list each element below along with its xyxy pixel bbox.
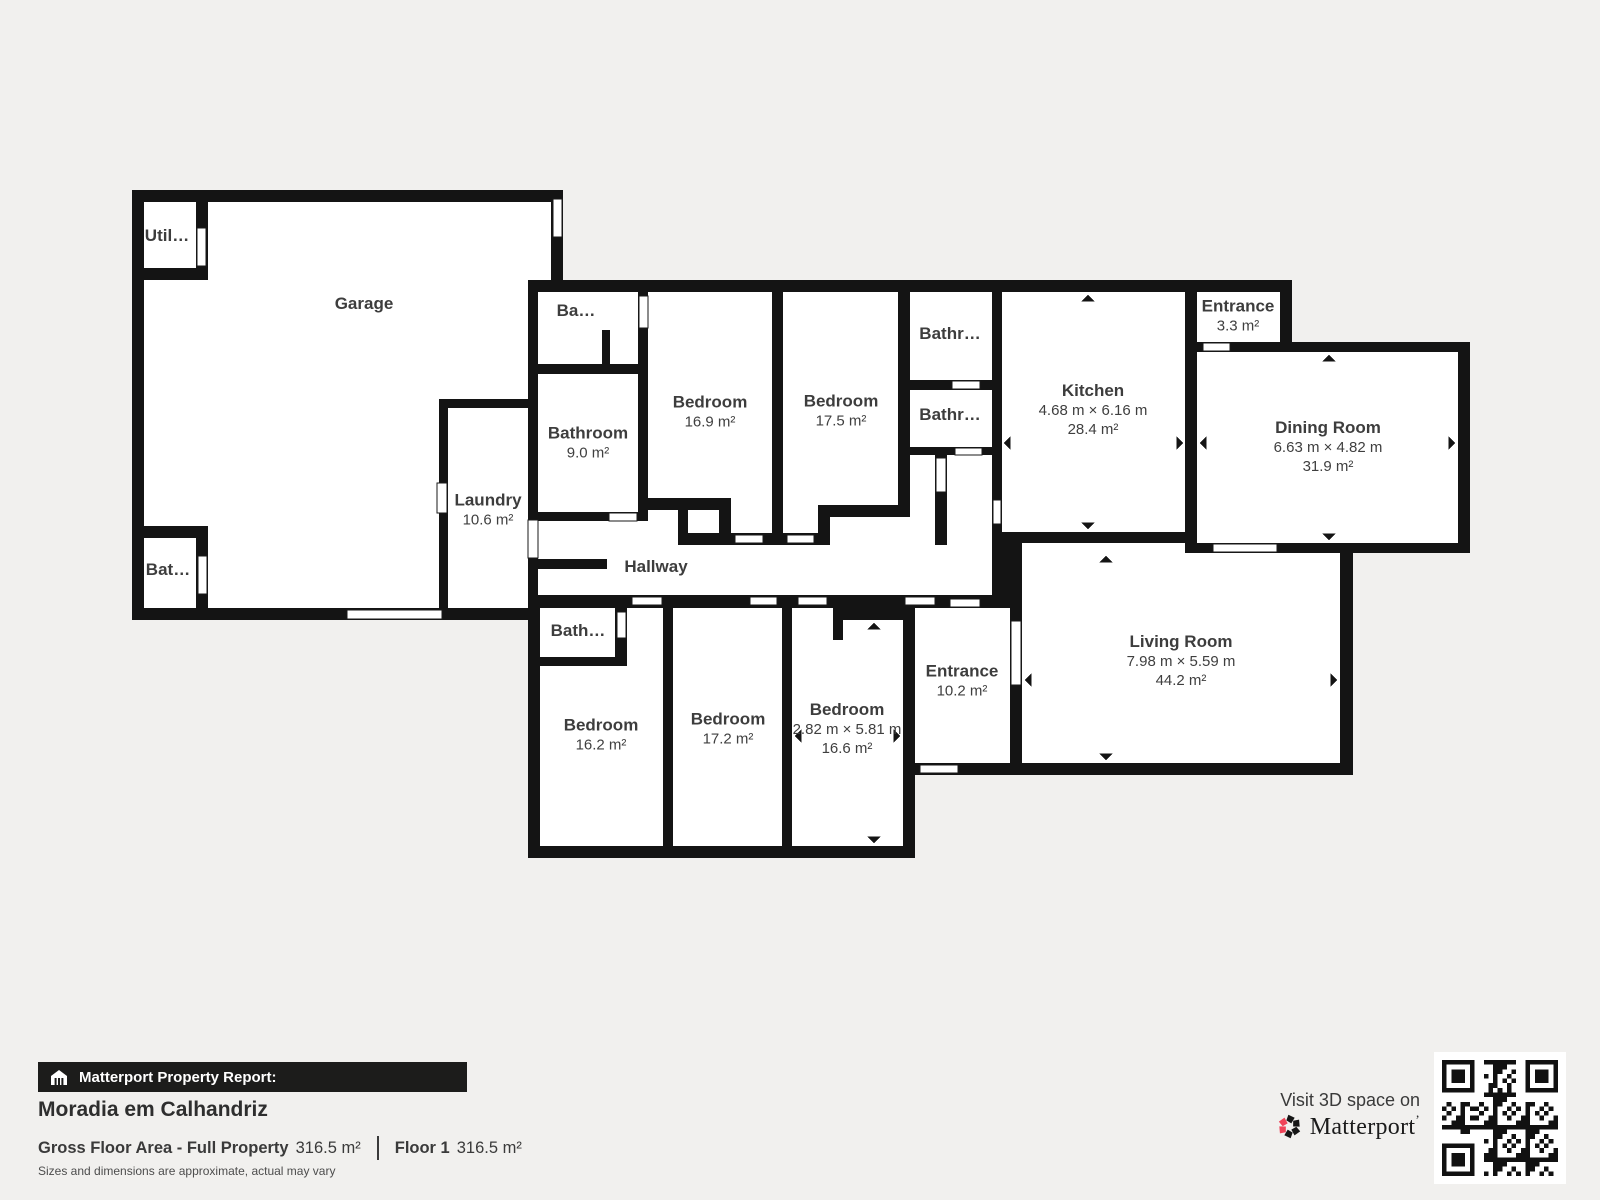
room-label-bedroom-2: Bedroom 17.5 m² bbox=[804, 392, 879, 431]
room-label-bedroom-3: Bedroom 16.2 m² bbox=[564, 716, 639, 755]
room-label-bathroom-mid: Bathr… bbox=[919, 405, 980, 425]
room-label-entrance-main: Entrance 10.2 m² bbox=[926, 662, 999, 701]
room-label-garage-bath: Bat… bbox=[146, 560, 190, 580]
floor-label: Floor 1 bbox=[395, 1139, 450, 1158]
trademark-tick: ’ bbox=[1415, 1112, 1420, 1127]
property-report-icon bbox=[50, 1069, 68, 1086]
area-stats: Gross Floor Area - Full Property 316.5 m… bbox=[38, 1136, 522, 1160]
room-label-bedroom-1: Bedroom 16.9 m² bbox=[673, 393, 748, 432]
gross-floor-area-value: 316.5 m² bbox=[296, 1139, 361, 1158]
room-label-entrance-small: Entrance 3.3 m² bbox=[1202, 297, 1275, 336]
property-report-page: Garage Util… Bat… Laundry 10.6 m² Ba… Ba… bbox=[0, 0, 1600, 1200]
room-label-laundry: Laundry 10.6 m² bbox=[454, 491, 521, 530]
room-label-bath-lower: Bath… bbox=[551, 621, 606, 641]
room-label-balcony: Ba… bbox=[557, 301, 596, 321]
property-title: Moradia em Calhandriz bbox=[38, 1098, 268, 1122]
room-label-dining: Dining Room 6.63 m × 4.82 m 31.9 m² bbox=[1274, 418, 1383, 476]
report-header-bar: Matterport Property Report: bbox=[38, 1062, 467, 1092]
room-label-utility: Util… bbox=[145, 226, 189, 246]
room-label-kitchen: Kitchen 4.68 m × 6.16 m 28.4 m² bbox=[1039, 381, 1148, 439]
gross-floor-area-label: Gross Floor Area - Full Property bbox=[38, 1139, 289, 1158]
report-bar-label: Matterport Property Report: bbox=[79, 1069, 277, 1086]
room-label-living: Living Room 7.98 m × 5.59 m 44.2 m² bbox=[1127, 632, 1236, 690]
qr-code bbox=[1434, 1052, 1566, 1184]
matterport-pinwheel-icon bbox=[1276, 1113, 1303, 1140]
matterport-logo: Matterport’ bbox=[1234, 1112, 1420, 1141]
floor-plan bbox=[0, 0, 1600, 1200]
disclaimer-text: Sizes and dimensions are approximate, ac… bbox=[38, 1164, 335, 1178]
stats-divider bbox=[377, 1136, 379, 1160]
matterport-wordmark: Matterport’ bbox=[1310, 1112, 1420, 1141]
room-label-bedroom-5: Bedroom 2.82 m × 5.81 m 16.6 m² bbox=[793, 700, 902, 758]
room-label-bathroom-main: Bathroom 9.0 m² bbox=[548, 424, 628, 463]
qr-code-pattern bbox=[1442, 1060, 1558, 1176]
room-label-bedroom-4: Bedroom 17.2 m² bbox=[691, 710, 766, 749]
room-label-hallway: Hallway bbox=[624, 557, 687, 577]
room-label-bathroom-top: Bathr… bbox=[919, 324, 980, 344]
room-label-garage: Garage bbox=[335, 294, 394, 314]
floor-value: 316.5 m² bbox=[457, 1139, 522, 1158]
visit-3d-text: Visit 3D space on bbox=[1234, 1090, 1420, 1111]
